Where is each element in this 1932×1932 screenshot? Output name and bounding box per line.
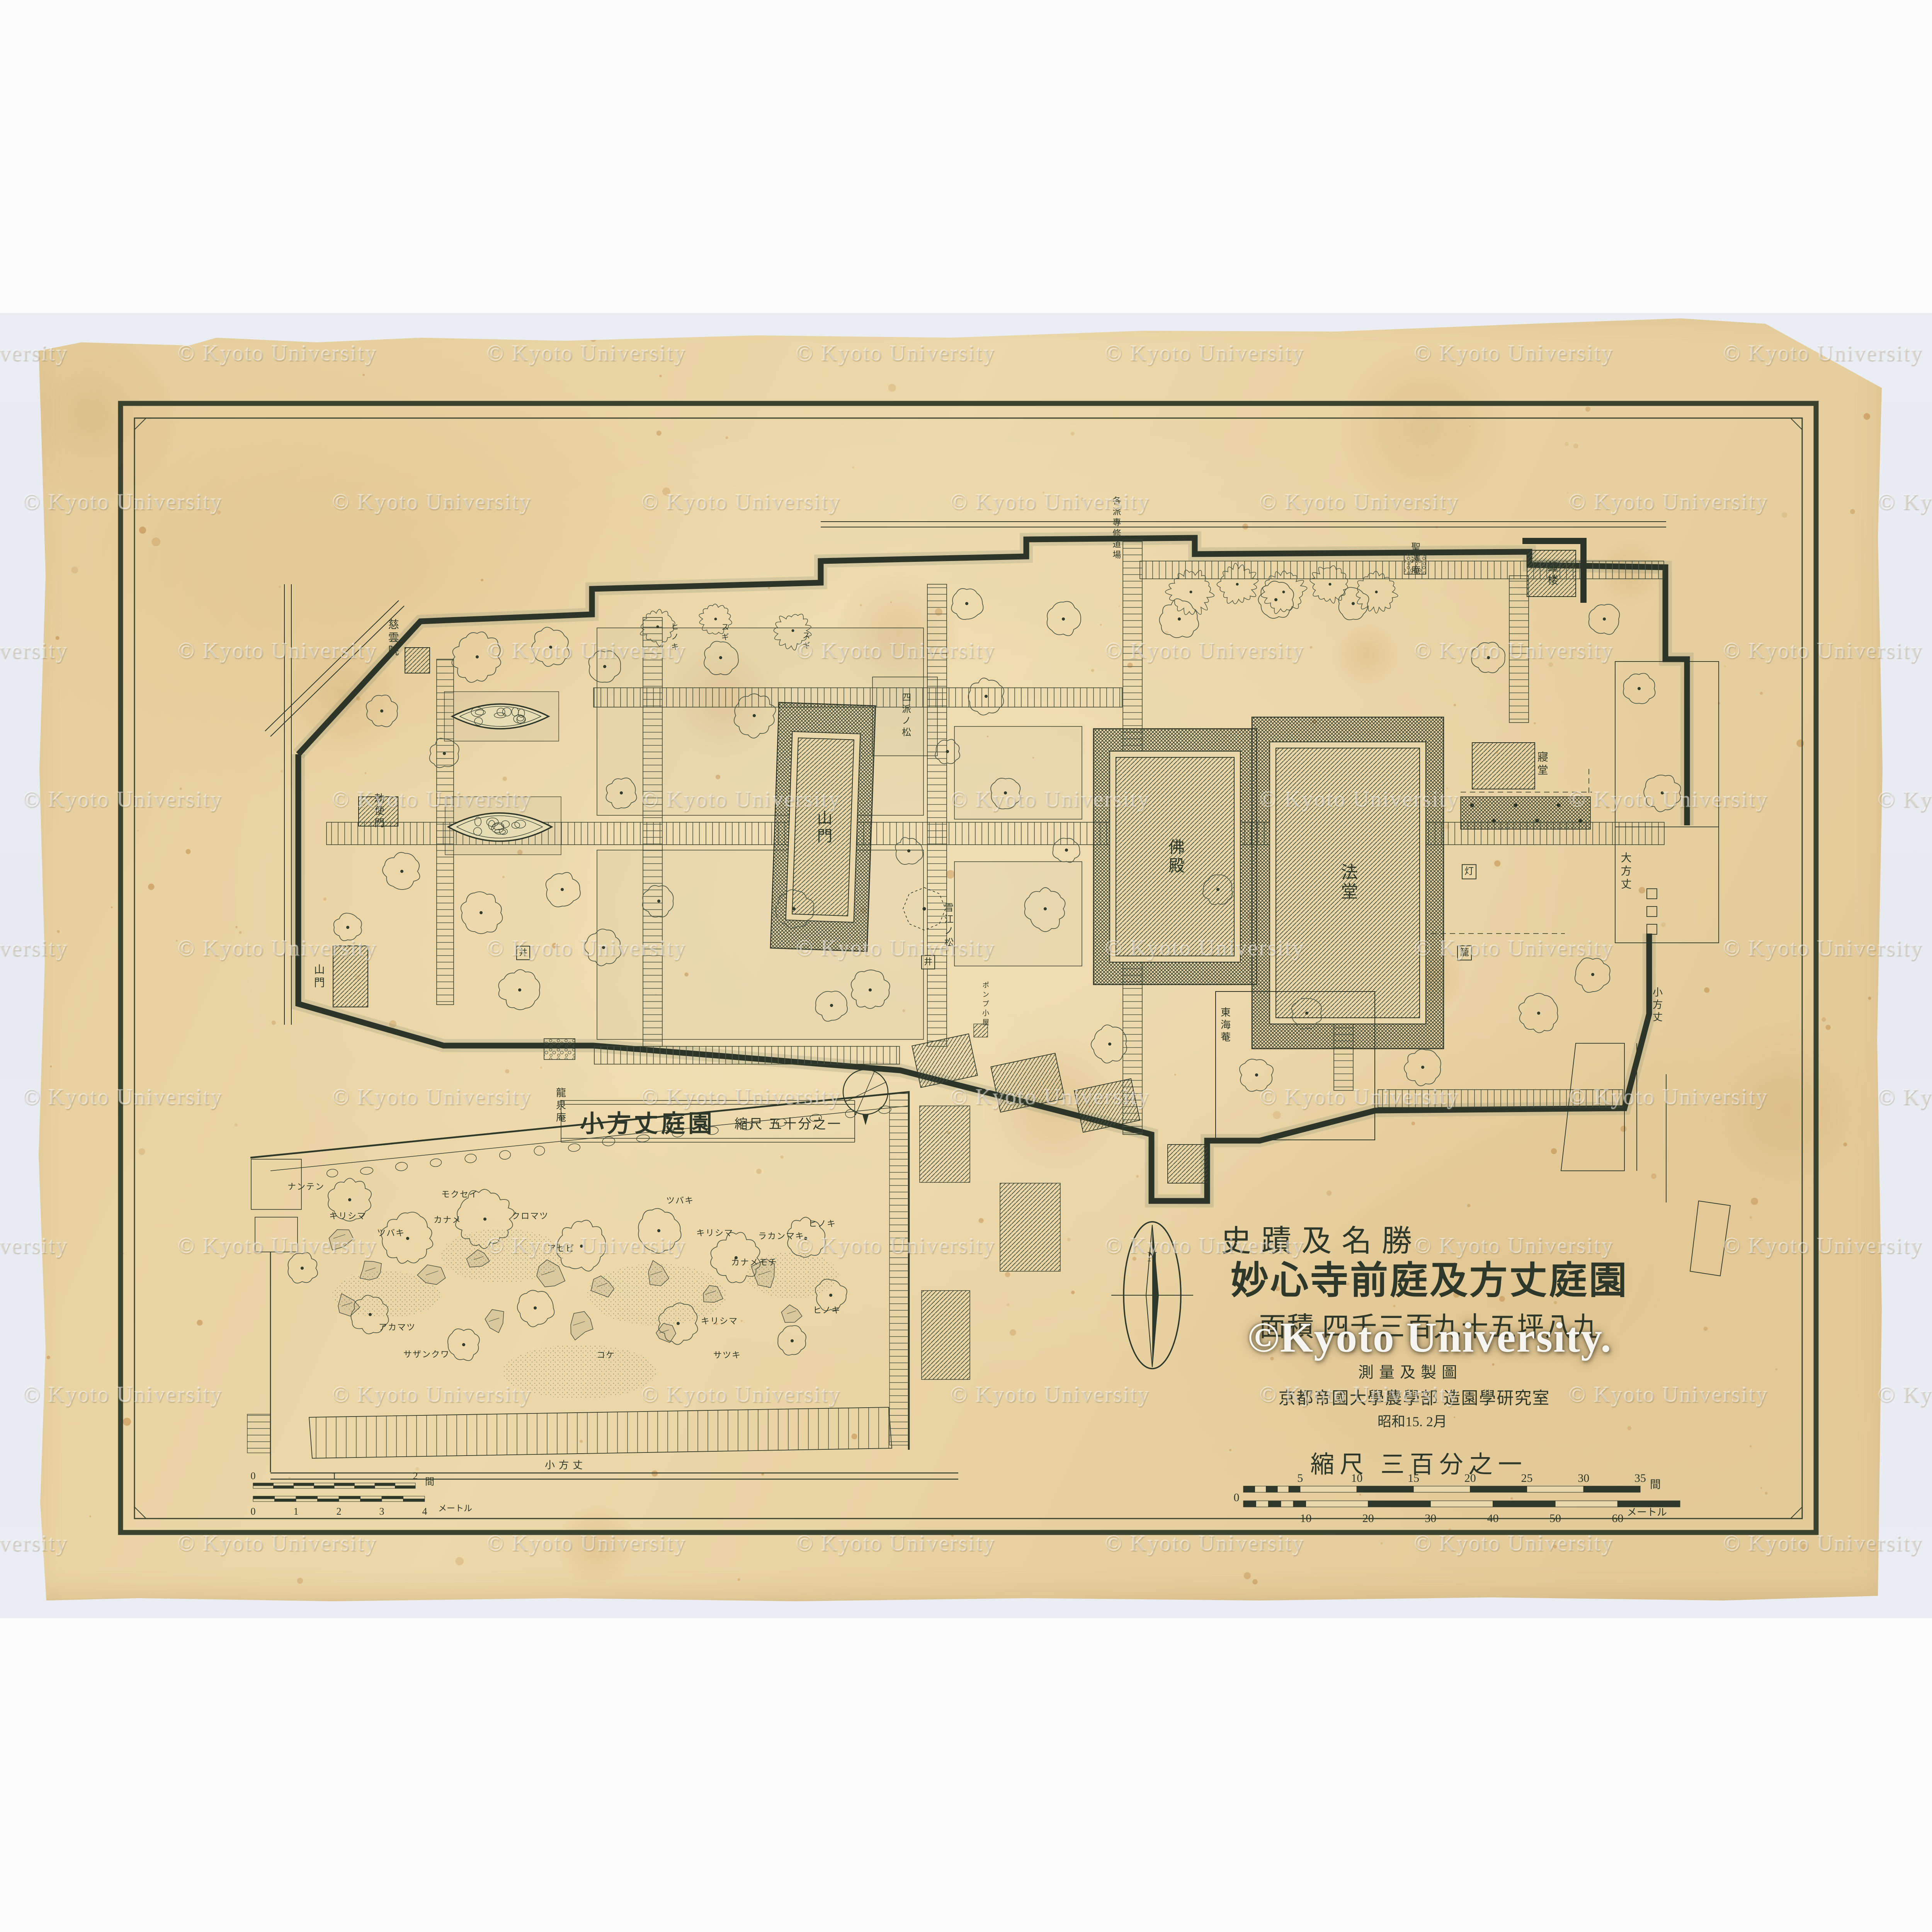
paper-sheet	[23, 305, 1893, 1604]
scanned-sheet: 史蹟及名勝 妙心寺前庭及方丈庭園 面積 四千三百九十五坪八九 測量及製圖 京都帝…	[0, 0, 1932, 1932]
paper-foxing-texture	[23, 305, 1893, 1604]
